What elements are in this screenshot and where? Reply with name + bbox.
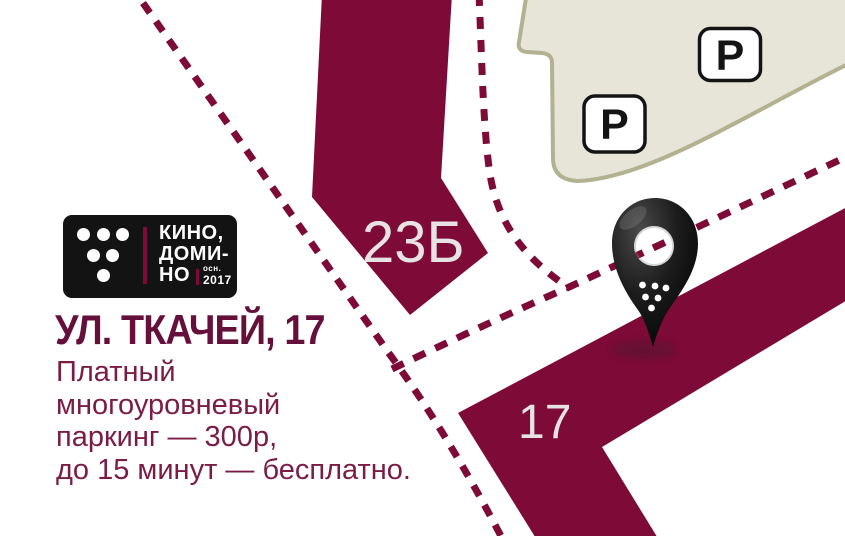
logo-founded-divider [196, 269, 199, 285]
logo-line-3: НО [159, 265, 190, 286]
description-line-2: многоуровневый [56, 389, 411, 422]
parking-icon: P [700, 29, 761, 81]
parking-icon-letter: P [716, 32, 745, 80]
founded-year: 2017 [203, 274, 232, 286]
pin-shadow [611, 341, 675, 359]
founded-label: осн. [203, 265, 232, 273]
address-title: УЛ. ТКАЧЕЙ, 17 [55, 306, 325, 354]
logo-line-1: КИНО, [159, 223, 232, 244]
building-23b-label: 23Б [362, 210, 465, 275]
description-line-3: паркинг — 300р, [56, 421, 411, 454]
parking-icon: P [584, 96, 645, 152]
description-line-1: Платный [56, 356, 411, 389]
parking-description: Платный многоуровневый паркинг — 300р, д… [56, 356, 411, 486]
description-line-4: до 15 минут — бесплатно. [56, 454, 411, 487]
building-17 [458, 206, 845, 536]
building-17-label: 17 [518, 396, 571, 449]
parking-lot-building [519, 0, 845, 181]
logo-line-2: ДОМИ- [159, 244, 232, 265]
logo-wordmark: КИНО, ДОМИ- НО осн. 2017 [159, 223, 232, 286]
map-flyer: 23Б 17 P P [0, 0, 845, 536]
logo-kino-domino: КИНО, ДОМИ- НО осн. 2017 [63, 215, 237, 298]
logo-divider [143, 227, 147, 284]
parking-icon-letter: P [600, 101, 629, 149]
